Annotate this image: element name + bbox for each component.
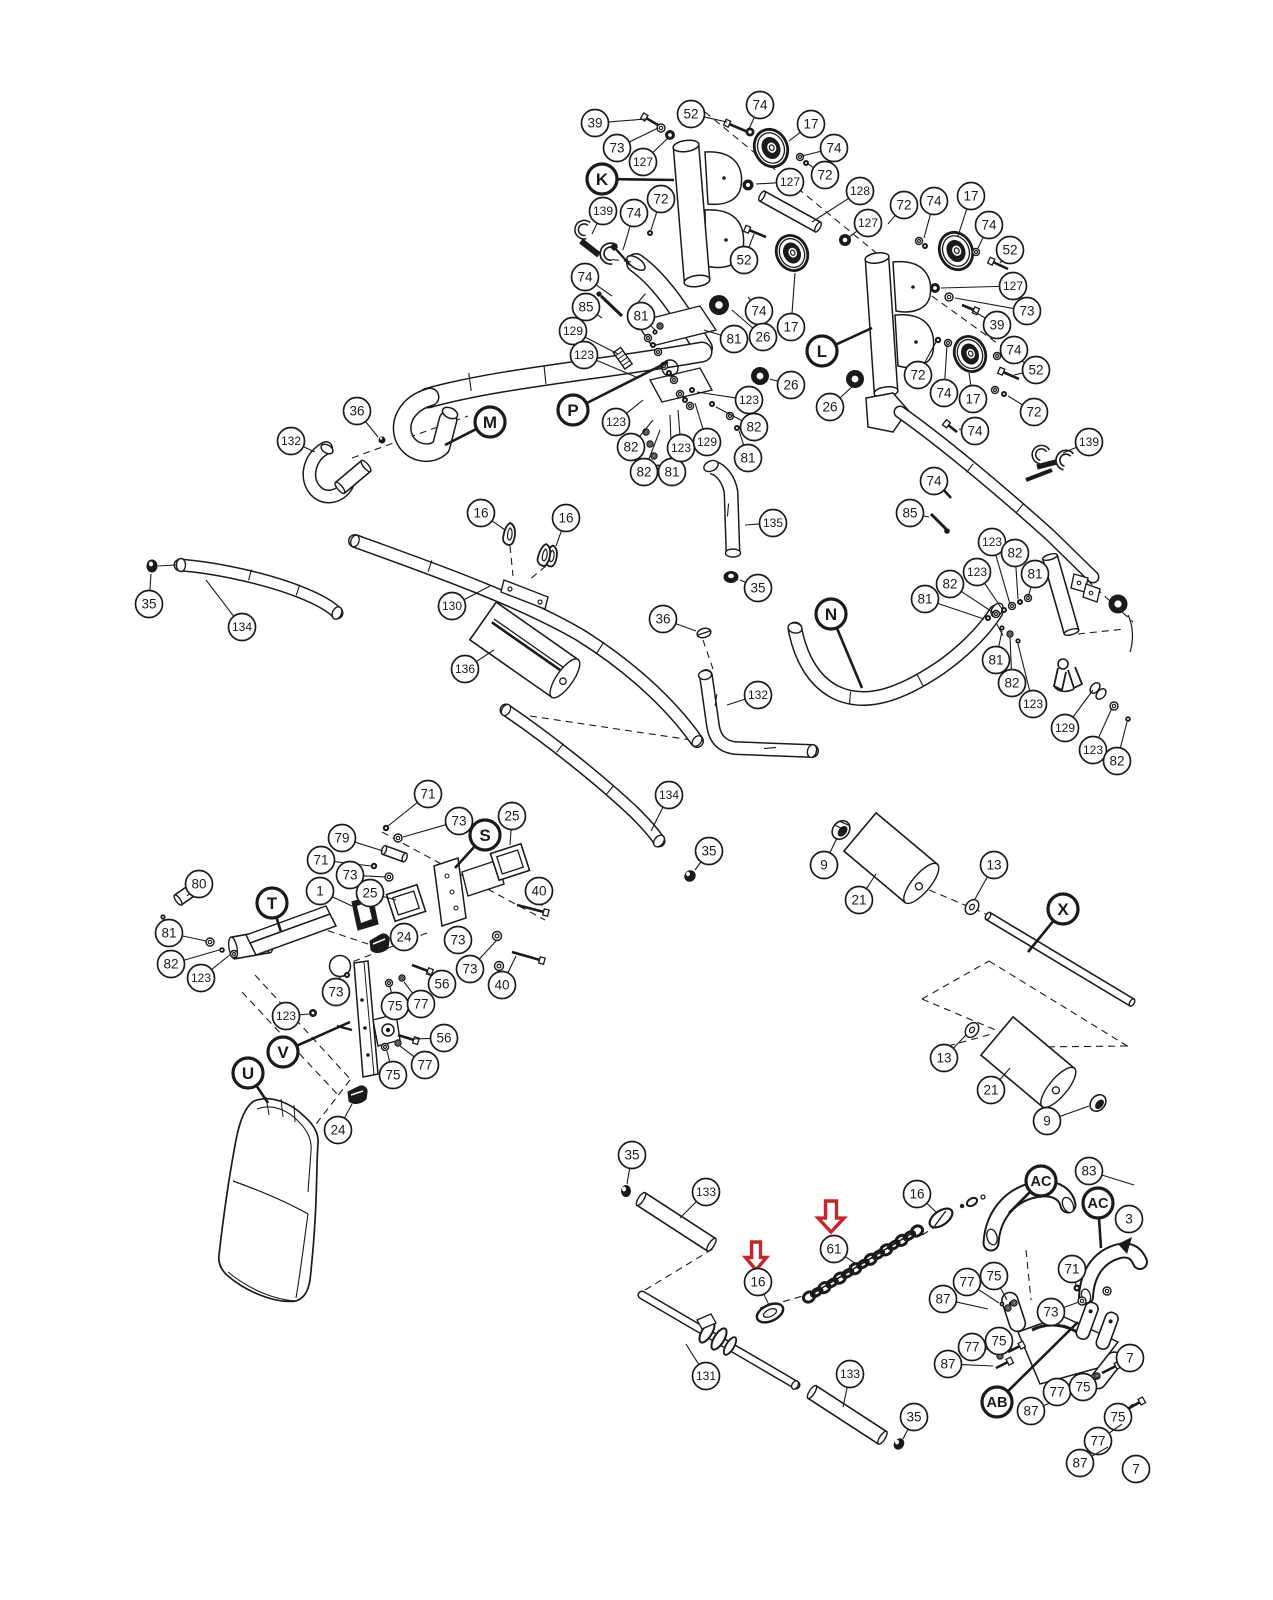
svg-text:74: 74 [981, 218, 997, 233]
svg-text:26: 26 [755, 330, 770, 345]
svg-text:17: 17 [963, 189, 978, 204]
svg-text:35: 35 [701, 844, 716, 859]
svg-text:7: 7 [1126, 1351, 1134, 1366]
svg-text:1: 1 [316, 884, 324, 899]
svg-text:56: 56 [434, 977, 449, 992]
svg-text:81: 81 [917, 592, 932, 607]
svg-text:123: 123 [276, 1009, 296, 1023]
svg-text:81: 81 [664, 465, 679, 480]
svg-text:71: 71 [420, 787, 435, 802]
svg-text:81: 81 [633, 309, 648, 324]
svg-text:21: 21 [851, 893, 866, 908]
svg-text:39: 39 [587, 116, 602, 131]
svg-text:123: 123 [606, 415, 626, 429]
svg-text:127: 127 [1003, 279, 1023, 293]
svg-text:73: 73 [1043, 1305, 1058, 1320]
svg-text:71: 71 [1064, 1262, 1079, 1277]
svg-text:36: 36 [349, 404, 364, 419]
svg-text:24: 24 [396, 930, 412, 945]
svg-text:77: 77 [1090, 1434, 1105, 1449]
svg-text:82: 82 [163, 957, 178, 972]
svg-text:130: 130 [442, 599, 462, 613]
svg-text:40: 40 [531, 884, 546, 899]
svg-text:74: 74 [826, 141, 842, 156]
svg-text:123: 123 [982, 535, 1002, 549]
svg-text:56: 56 [436, 1031, 451, 1046]
svg-text:K: K [596, 170, 609, 189]
svg-text:123: 123 [967, 565, 987, 579]
svg-text:127: 127 [633, 155, 653, 169]
svg-text:73: 73 [1019, 304, 1034, 319]
svg-text:134: 134 [659, 788, 679, 802]
svg-text:123: 123 [671, 441, 691, 455]
svg-text:52: 52 [683, 107, 698, 122]
svg-text:129: 129 [1055, 721, 1075, 735]
svg-text:72: 72 [653, 192, 668, 207]
svg-text:87: 87 [1023, 1404, 1038, 1419]
svg-text:127: 127 [858, 216, 878, 230]
svg-text:74: 74 [936, 386, 952, 401]
svg-text:36: 36 [655, 612, 670, 627]
svg-text:52: 52 [736, 253, 751, 268]
svg-text:82: 82 [942, 577, 957, 592]
svg-text:X: X [1057, 900, 1069, 919]
svg-text:73: 73 [342, 868, 357, 883]
svg-text:75: 75 [387, 999, 402, 1014]
svg-text:T: T [267, 894, 278, 913]
svg-text:133: 133 [696, 1185, 716, 1199]
svg-text:39: 39 [989, 318, 1004, 333]
svg-text:74: 74 [577, 270, 593, 285]
svg-text:26: 26 [822, 400, 837, 415]
svg-text:77: 77 [1049, 1385, 1064, 1400]
svg-text:87: 87 [935, 1292, 950, 1307]
svg-text:75: 75 [986, 1269, 1001, 1284]
svg-text:73: 73 [450, 933, 465, 948]
svg-text:77: 77 [413, 997, 428, 1012]
svg-text:123: 123 [1083, 743, 1103, 757]
svg-text:129: 129 [563, 324, 583, 338]
svg-text:73: 73 [462, 962, 477, 977]
svg-text:N: N [825, 605, 837, 624]
svg-text:136: 136 [455, 662, 475, 676]
svg-text:72: 72 [896, 198, 911, 213]
svg-text:87: 87 [1072, 1456, 1087, 1471]
svg-text:35: 35 [750, 581, 765, 596]
svg-text:82: 82 [1007, 546, 1022, 561]
svg-text:71: 71 [313, 853, 328, 868]
svg-text:74: 74 [752, 98, 768, 113]
svg-text:82: 82 [1004, 676, 1019, 691]
svg-text:82: 82 [636, 465, 651, 480]
svg-text:17: 17 [965, 392, 980, 407]
svg-text:40: 40 [494, 978, 509, 993]
svg-text:123: 123 [574, 348, 594, 362]
svg-text:25: 25 [362, 886, 377, 901]
svg-text:16: 16 [473, 506, 488, 521]
svg-text:V: V [277, 1043, 289, 1062]
svg-text:75: 75 [385, 1068, 400, 1083]
svg-text:9: 9 [1043, 1114, 1051, 1129]
svg-text:17: 17 [803, 117, 818, 132]
svg-text:77: 77 [964, 1340, 979, 1355]
svg-text:3: 3 [1125, 1212, 1133, 1227]
svg-text:26: 26 [783, 378, 798, 393]
svg-text:AC: AC [1088, 1196, 1109, 1212]
svg-text:73: 73 [328, 985, 343, 1000]
svg-text:74: 74 [926, 194, 942, 209]
svg-text:81: 81 [1027, 567, 1042, 582]
svg-text:80: 80 [191, 877, 206, 892]
svg-text:25: 25 [504, 809, 519, 824]
svg-text:83: 83 [1081, 1164, 1096, 1179]
svg-text:M: M [483, 413, 497, 432]
svg-text:75: 75 [991, 1334, 1006, 1349]
svg-text:9: 9 [820, 858, 828, 873]
svg-text:U: U [242, 1064, 254, 1083]
svg-text:81: 81 [161, 926, 176, 941]
svg-text:123: 123 [739, 393, 759, 407]
svg-text:132: 132 [281, 434, 301, 448]
svg-text:13: 13 [936, 1051, 951, 1066]
svg-text:24: 24 [330, 1123, 346, 1138]
svg-text:21: 21 [983, 1083, 998, 1098]
svg-text:77: 77 [959, 1275, 974, 1290]
svg-text:82: 82 [623, 440, 638, 455]
svg-text:73: 73 [451, 814, 466, 829]
svg-text:L: L [817, 342, 827, 361]
svg-text:72: 72 [910, 368, 925, 383]
svg-text:123: 123 [1023, 697, 1043, 711]
svg-text:123: 123 [191, 971, 211, 985]
svg-text:52: 52 [1028, 363, 1043, 378]
svg-text:17: 17 [783, 320, 798, 335]
svg-text:87: 87 [940, 1357, 955, 1372]
svg-text:139: 139 [593, 204, 613, 218]
svg-text:P: P [567, 401, 578, 420]
svg-text:61: 61 [826, 1242, 841, 1257]
svg-text:AC: AC [1031, 1174, 1052, 1190]
svg-text:128: 128 [850, 184, 870, 198]
svg-text:82: 82 [746, 420, 761, 435]
svg-text:74: 74 [751, 304, 767, 319]
svg-text:127: 127 [780, 175, 800, 189]
svg-text:79: 79 [334, 831, 349, 846]
svg-text:85: 85 [902, 506, 917, 521]
svg-text:16: 16 [558, 511, 573, 526]
svg-text:81: 81 [740, 451, 755, 466]
svg-text:81: 81 [726, 332, 741, 347]
svg-text:133: 133 [840, 1367, 860, 1381]
svg-text:82: 82 [1109, 754, 1124, 769]
svg-text:52: 52 [1002, 243, 1017, 258]
svg-text:AB: AB [987, 1395, 1008, 1411]
svg-text:72: 72 [1026, 405, 1041, 420]
svg-text:74: 74 [967, 424, 983, 439]
svg-text:16: 16 [750, 1275, 765, 1290]
svg-text:139: 139 [1079, 435, 1099, 449]
svg-text:74: 74 [926, 474, 942, 489]
svg-text:7: 7 [1132, 1462, 1140, 1477]
svg-text:75: 75 [1075, 1380, 1090, 1395]
svg-text:35: 35 [141, 597, 156, 612]
svg-text:13: 13 [986, 858, 1001, 873]
svg-text:134: 134 [232, 620, 252, 634]
svg-text:35: 35 [624, 1148, 639, 1163]
svg-text:72: 72 [817, 168, 832, 183]
svg-text:35: 35 [906, 1410, 921, 1425]
svg-text:135: 135 [763, 516, 783, 530]
svg-text:132: 132 [748, 688, 768, 702]
svg-text:81: 81 [988, 653, 1003, 668]
svg-text:16: 16 [909, 1187, 924, 1202]
svg-text:77: 77 [417, 1058, 432, 1073]
svg-text:S: S [479, 826, 490, 845]
svg-text:73: 73 [609, 141, 624, 156]
svg-text:74: 74 [1006, 343, 1022, 358]
svg-text:74: 74 [626, 206, 642, 221]
svg-text:129: 129 [697, 435, 717, 449]
svg-text:85: 85 [578, 300, 593, 315]
svg-text:75: 75 [1110, 1410, 1125, 1425]
svg-text:131: 131 [696, 1369, 716, 1383]
